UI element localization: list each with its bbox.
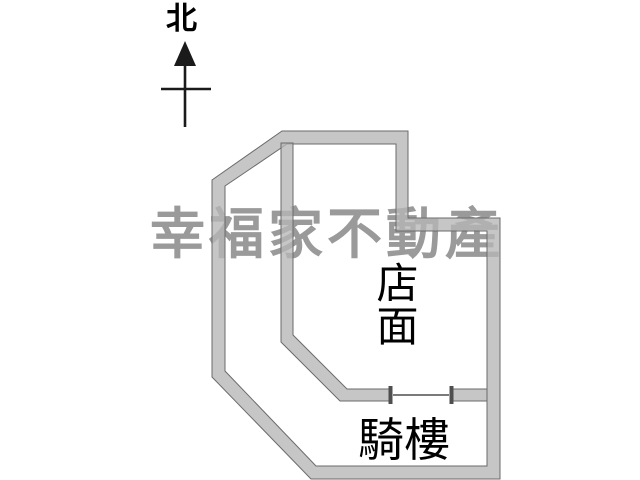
door-jamb-right — [450, 386, 454, 404]
room-label-storefront: 店面 — [372, 261, 414, 347]
north-label: 北 — [166, 3, 197, 34]
room-label-arcade: 騎樓 — [358, 418, 450, 464]
floor-plan-canvas: 幸福家不動產 北 店面 騎樓 — [0, 0, 640, 480]
partition-wall-stub — [453, 389, 487, 401]
north-arrow — [161, 41, 211, 127]
door-jamb-left — [389, 386, 393, 404]
outer-wall-ring — [212, 131, 500, 479]
floor-plan-drawing — [0, 0, 640, 480]
